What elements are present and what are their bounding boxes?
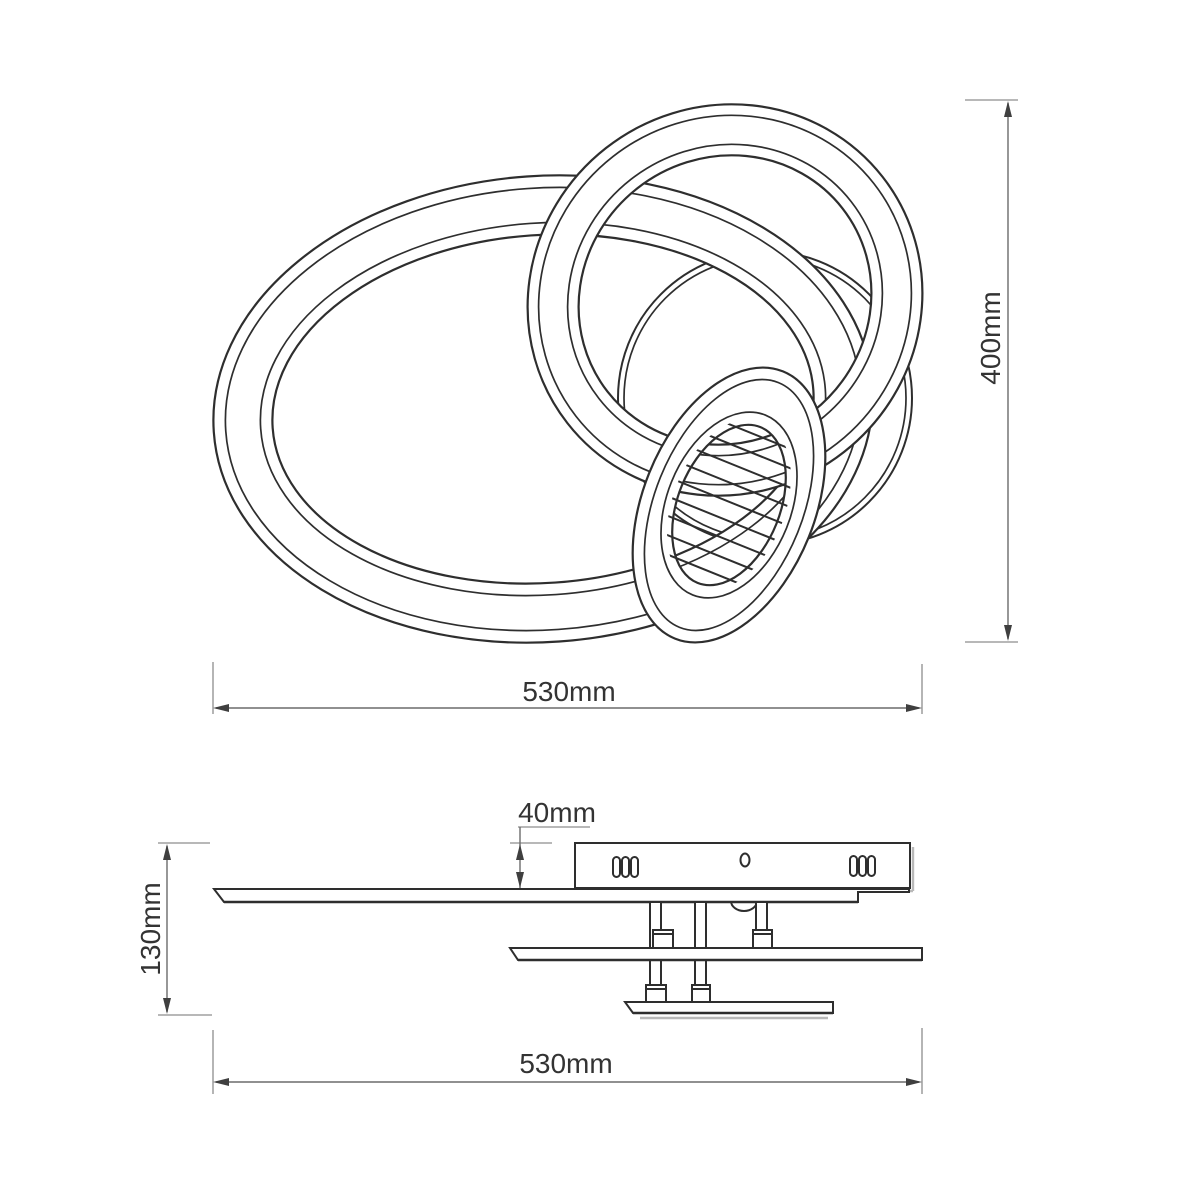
arrowhead-down-icon (163, 998, 171, 1014)
arrowhead-left-icon (213, 704, 229, 712)
support-rod (756, 902, 767, 930)
arrowhead-down-icon (1004, 625, 1012, 641)
dim-label-530mm-top: 530mm (522, 676, 615, 707)
canopy-profile (575, 843, 913, 891)
rod-collar (692, 985, 710, 1002)
dimension-530mm-side: 530mm (213, 1028, 922, 1094)
arrowhead-right-icon (906, 704, 922, 712)
rod-collar (646, 985, 666, 1002)
dim-label-40mm: 40mm (518, 797, 596, 828)
middle-ring-profile (510, 948, 922, 960)
arrowhead-up-icon (1004, 101, 1012, 117)
arrowhead-down-icon (516, 872, 524, 888)
support-rod (695, 902, 706, 985)
rod-collars-lower (646, 985, 710, 1002)
dim-label-530mm-side: 530mm (519, 1048, 612, 1079)
rod-collars-upper (653, 930, 772, 948)
arrowhead-up-icon (163, 844, 171, 860)
top-view: 400mm 530mm (198, 25, 1018, 714)
outer-ring-bar (214, 889, 909, 902)
middle-ring-bar (510, 948, 922, 960)
technical-drawing-page: 400mm 530mm (0, 0, 1200, 1200)
arrowhead-up-icon (516, 844, 524, 860)
rod-collar (653, 930, 673, 948)
dim-label-400mm: 400mm (975, 291, 1006, 384)
dimension-130mm: 130mm (135, 843, 212, 1015)
dim-label-130mm: 130mm (135, 882, 166, 975)
lamp-dimension-drawing: 400mm 530mm (0, 0, 1200, 1200)
rod-collar (753, 930, 772, 948)
arrowhead-left-icon (213, 1078, 229, 1086)
dimension-530mm-top: 530mm (213, 662, 922, 714)
arrowhead-right-icon (906, 1078, 922, 1086)
outer-ring-profile (214, 889, 909, 902)
inner-ring-bar (625, 1002, 833, 1013)
dimension-400mm: 400mm (965, 100, 1018, 642)
inner-ring-profile (625, 1002, 833, 1018)
side-view: 130mm 40mm 530mm (135, 797, 922, 1094)
